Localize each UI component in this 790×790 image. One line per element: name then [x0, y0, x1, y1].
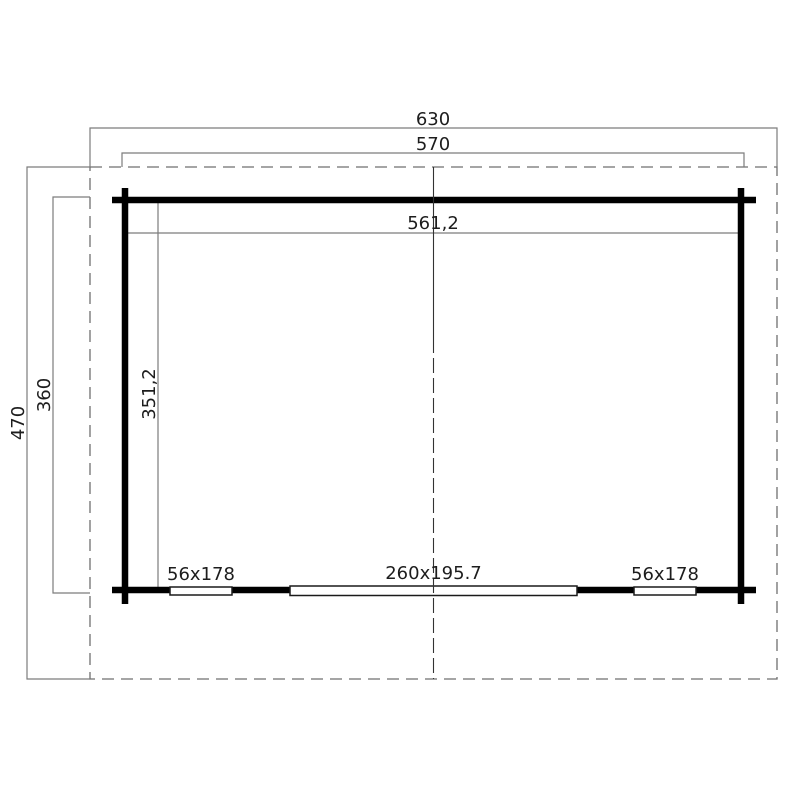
label-inner-width: 561,2 — [407, 213, 459, 234]
label-outer-width: 570 — [416, 134, 450, 155]
label-window-left: 56x178 — [167, 564, 235, 585]
label-inner-depth: 351,2 — [139, 368, 160, 420]
window-left-opening — [170, 587, 232, 595]
dim-line-outer-depth — [53, 197, 90, 593]
label-window-right: 56x178 — [631, 564, 699, 585]
floor-plan-drawing: 630 570 561,2 470 360 351,2 56x178 260x1… — [0, 0, 790, 790]
label-door: 260x195.7 — [385, 563, 482, 584]
dimension-lines-left — [27, 167, 158, 679]
label-outer-depth: 360 — [34, 378, 55, 412]
label-roof-depth: 470 — [8, 406, 29, 440]
dimension-labels: 630 570 561,2 470 360 351,2 56x178 260x1… — [8, 109, 699, 585]
label-roof-width: 630 — [416, 109, 450, 130]
window-right-opening — [634, 587, 696, 595]
dim-line-outer-width — [122, 153, 744, 167]
dim-line-roof-depth — [27, 167, 90, 679]
